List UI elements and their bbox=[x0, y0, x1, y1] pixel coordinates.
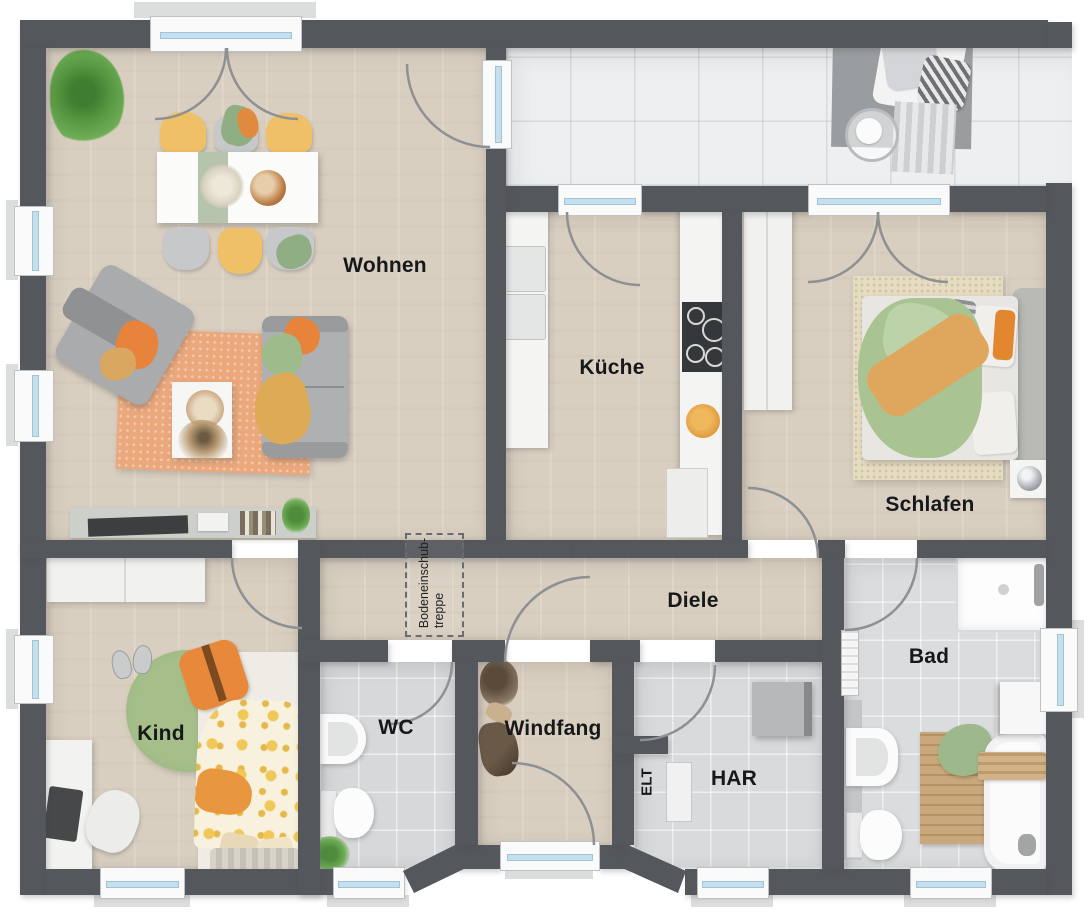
kitchen-sink bbox=[504, 294, 546, 340]
wall bbox=[20, 540, 232, 558]
water-heater-shadow bbox=[804, 682, 812, 736]
wall bbox=[722, 212, 742, 540]
wall bbox=[715, 640, 822, 662]
decor-items bbox=[198, 513, 228, 531]
window-glass bbox=[702, 881, 764, 888]
french-door bbox=[150, 16, 302, 52]
sofa-armrest bbox=[262, 442, 348, 458]
kitchen-sink bbox=[504, 246, 546, 292]
window-glass bbox=[32, 375, 39, 437]
attic-stairs-label-line1: Bodeneinschub- bbox=[417, 538, 431, 628]
wall bbox=[948, 186, 1046, 212]
wc-sink-bowl bbox=[328, 722, 358, 756]
window-glass bbox=[1057, 634, 1064, 706]
attic-stairs-label-line2: treppe bbox=[432, 593, 446, 628]
dishwasher bbox=[666, 468, 708, 538]
room-label-elt: ELT bbox=[639, 768, 656, 796]
wardrobe-seam bbox=[124, 558, 126, 602]
shower-faucet-icon bbox=[1034, 564, 1044, 606]
shower-drain-icon bbox=[998, 584, 1009, 595]
window-glass bbox=[32, 211, 39, 271]
wall bbox=[455, 662, 478, 845]
wall bbox=[917, 540, 1046, 558]
radiator bbox=[841, 630, 859, 696]
toilet bbox=[334, 788, 374, 838]
floor-plan: Wohnen Küche Schlafen Diele Bad Kind WC … bbox=[0, 0, 1090, 915]
attic-stairs-label: Bodeneinschub- treppe bbox=[417, 538, 447, 628]
water-heater bbox=[752, 682, 810, 736]
burner-icon bbox=[687, 307, 705, 325]
entrance-door bbox=[500, 841, 600, 871]
window bbox=[1040, 628, 1078, 712]
dining-chair bbox=[160, 112, 206, 154]
terrace-mat bbox=[891, 101, 957, 174]
plant-icon bbox=[50, 50, 124, 146]
room-label-diele: Diele bbox=[667, 589, 718, 613]
window bbox=[697, 867, 769, 899]
terrace-floor bbox=[506, 48, 1072, 186]
window-glass bbox=[817, 198, 940, 205]
window bbox=[14, 635, 54, 704]
terrace-door bbox=[482, 60, 512, 149]
window-glass bbox=[495, 66, 502, 143]
window-glass bbox=[916, 881, 986, 888]
wall bbox=[486, 145, 506, 540]
tv bbox=[88, 515, 189, 536]
toilet bbox=[860, 810, 902, 860]
wall bbox=[612, 736, 668, 754]
pillow bbox=[992, 309, 1015, 360]
tub-faucet-icon bbox=[1018, 834, 1036, 856]
dining-chair bbox=[266, 113, 312, 154]
window-glass bbox=[106, 881, 179, 888]
lamp-icon bbox=[1017, 466, 1042, 491]
window-glass bbox=[160, 32, 292, 39]
wall bbox=[818, 540, 845, 558]
wall bbox=[298, 640, 388, 662]
window-glass bbox=[507, 854, 593, 861]
dining-chair bbox=[218, 228, 262, 274]
wall bbox=[20, 48, 46, 895]
wall bbox=[573, 540, 748, 558]
coat-rack-items bbox=[480, 660, 518, 706]
room-label-bad: Bad bbox=[909, 645, 949, 669]
wall bbox=[640, 186, 808, 212]
room-label-wc: WC bbox=[378, 716, 413, 740]
window bbox=[100, 867, 185, 899]
window bbox=[910, 867, 992, 899]
flower-decor bbox=[200, 164, 244, 208]
wall bbox=[455, 845, 500, 869]
window-glass bbox=[32, 640, 39, 699]
room-label-kueche: Küche bbox=[579, 356, 644, 380]
wall bbox=[298, 540, 320, 895]
burner-icon bbox=[686, 344, 705, 363]
elt-panel bbox=[666, 762, 692, 822]
plant-icon bbox=[282, 496, 310, 534]
wardrobe bbox=[744, 205, 792, 410]
wall bbox=[452, 640, 505, 662]
wardrobe bbox=[47, 558, 205, 602]
window-glass bbox=[338, 881, 400, 888]
room-label-har: HAR bbox=[711, 767, 757, 791]
wall bbox=[1046, 183, 1072, 895]
window bbox=[333, 867, 405, 899]
kueche-door-frame bbox=[558, 184, 642, 216]
window bbox=[14, 370, 54, 442]
window-glass bbox=[564, 198, 636, 205]
bath-caddy bbox=[978, 752, 1046, 780]
wall bbox=[822, 558, 844, 869]
laptop-icon bbox=[43, 786, 84, 842]
decor-bowl bbox=[250, 170, 286, 206]
wall bbox=[598, 845, 630, 869]
wardrobe-seam bbox=[766, 205, 768, 410]
schlafen-door-frame bbox=[808, 184, 950, 216]
diele-floor bbox=[320, 558, 822, 640]
room-label-wohnen: Wohnen bbox=[343, 254, 427, 278]
wall bbox=[590, 640, 640, 662]
terrace-tray bbox=[856, 118, 882, 144]
terrace-pillar bbox=[1048, 22, 1072, 48]
bath-sink-bowl bbox=[856, 738, 888, 776]
fruit-bowl bbox=[686, 404, 720, 438]
dining-chair bbox=[163, 227, 209, 270]
books bbox=[240, 511, 276, 535]
room-label-kind: Kind bbox=[137, 722, 184, 746]
room-label-windfang: Windfang bbox=[504, 717, 601, 741]
room-label-schlafen: Schlafen bbox=[885, 493, 974, 517]
window bbox=[14, 206, 54, 276]
